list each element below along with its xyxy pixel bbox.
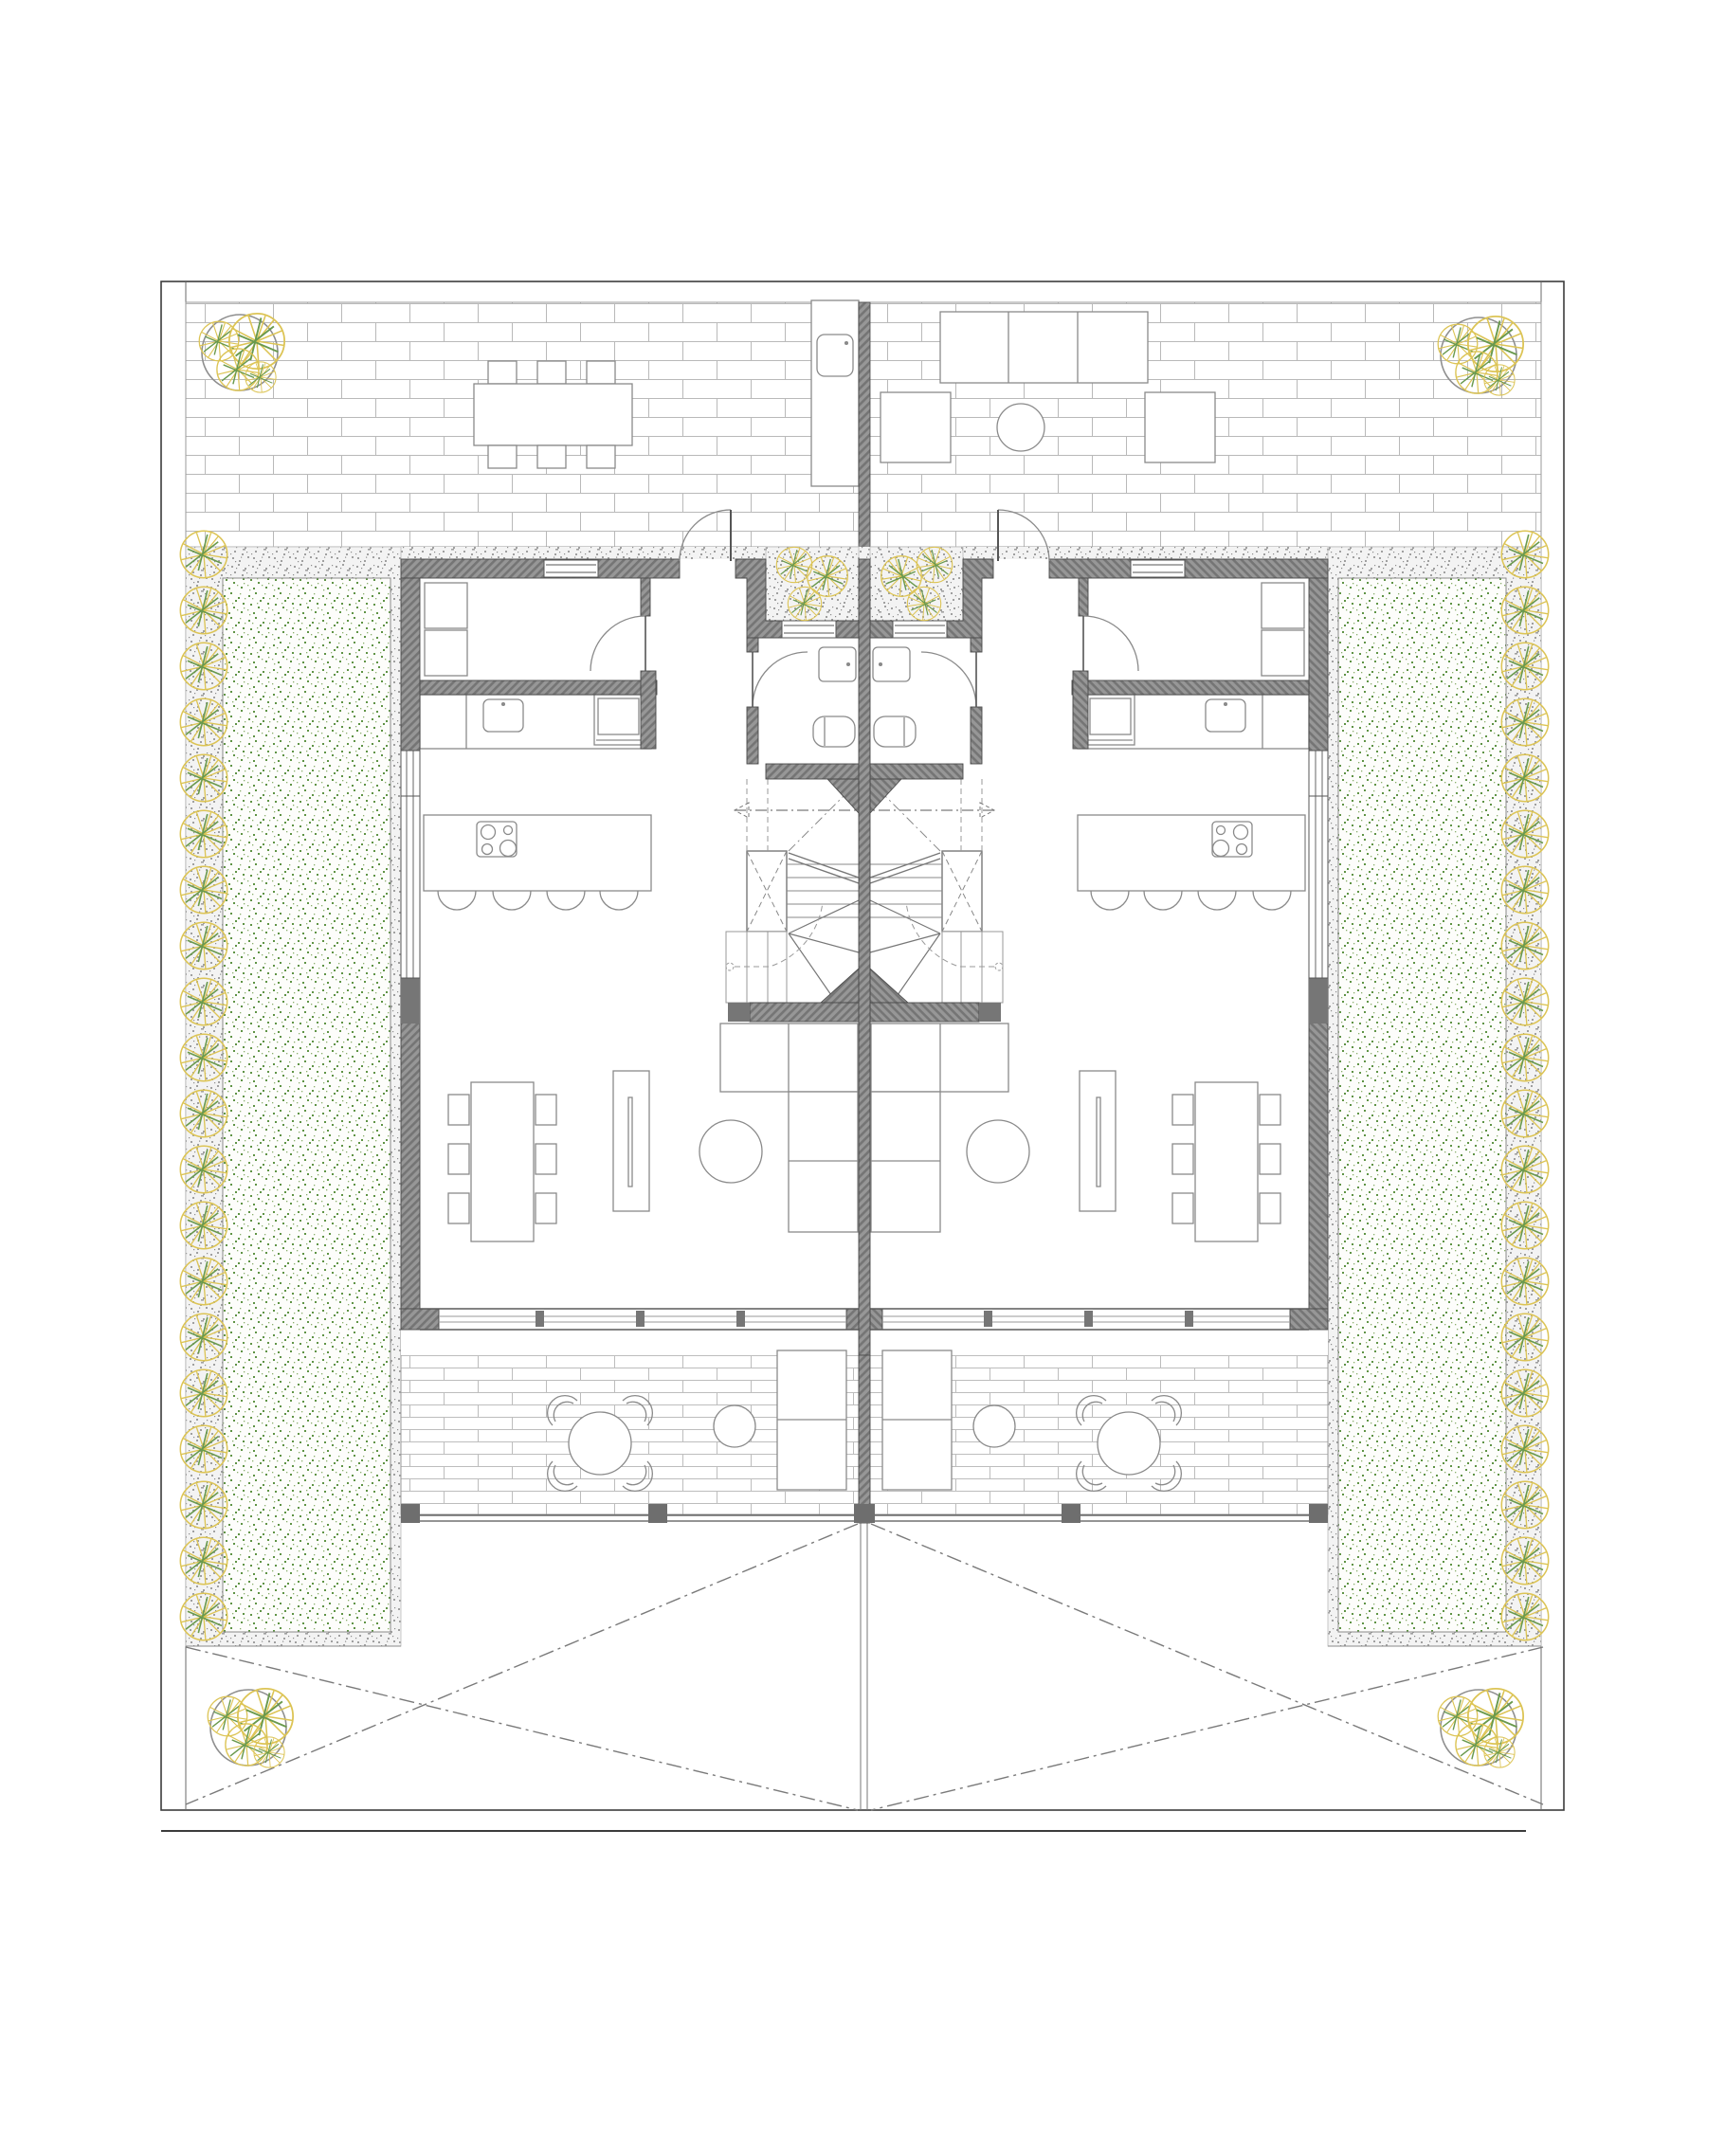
floor-plan-page — [0, 0, 1725, 2156]
terrace-armchair — [1145, 392, 1215, 462]
terrace-chair — [537, 445, 566, 468]
terrace-dining-table — [474, 384, 632, 445]
outdoor-sink — [817, 335, 853, 376]
lawn-left — [223, 578, 390, 1632]
terrace-chair — [488, 361, 517, 384]
patio-divider-wall — [859, 1355, 870, 1523]
terrace-round-table — [997, 404, 1044, 451]
pergola-post-center — [854, 1504, 875, 1523]
terrace-sofa — [940, 312, 1148, 383]
terrace-armchair — [881, 392, 951, 462]
terrace-chair — [488, 445, 517, 468]
terrace-chair — [587, 361, 615, 384]
terrace-chair — [587, 445, 615, 468]
outdoor-counter — [811, 300, 859, 486]
lawn-right — [1338, 578, 1506, 1632]
party-wall — [859, 559, 870, 1355]
terrace-chair — [537, 361, 566, 384]
floor-plan-svg — [0, 0, 1725, 2156]
